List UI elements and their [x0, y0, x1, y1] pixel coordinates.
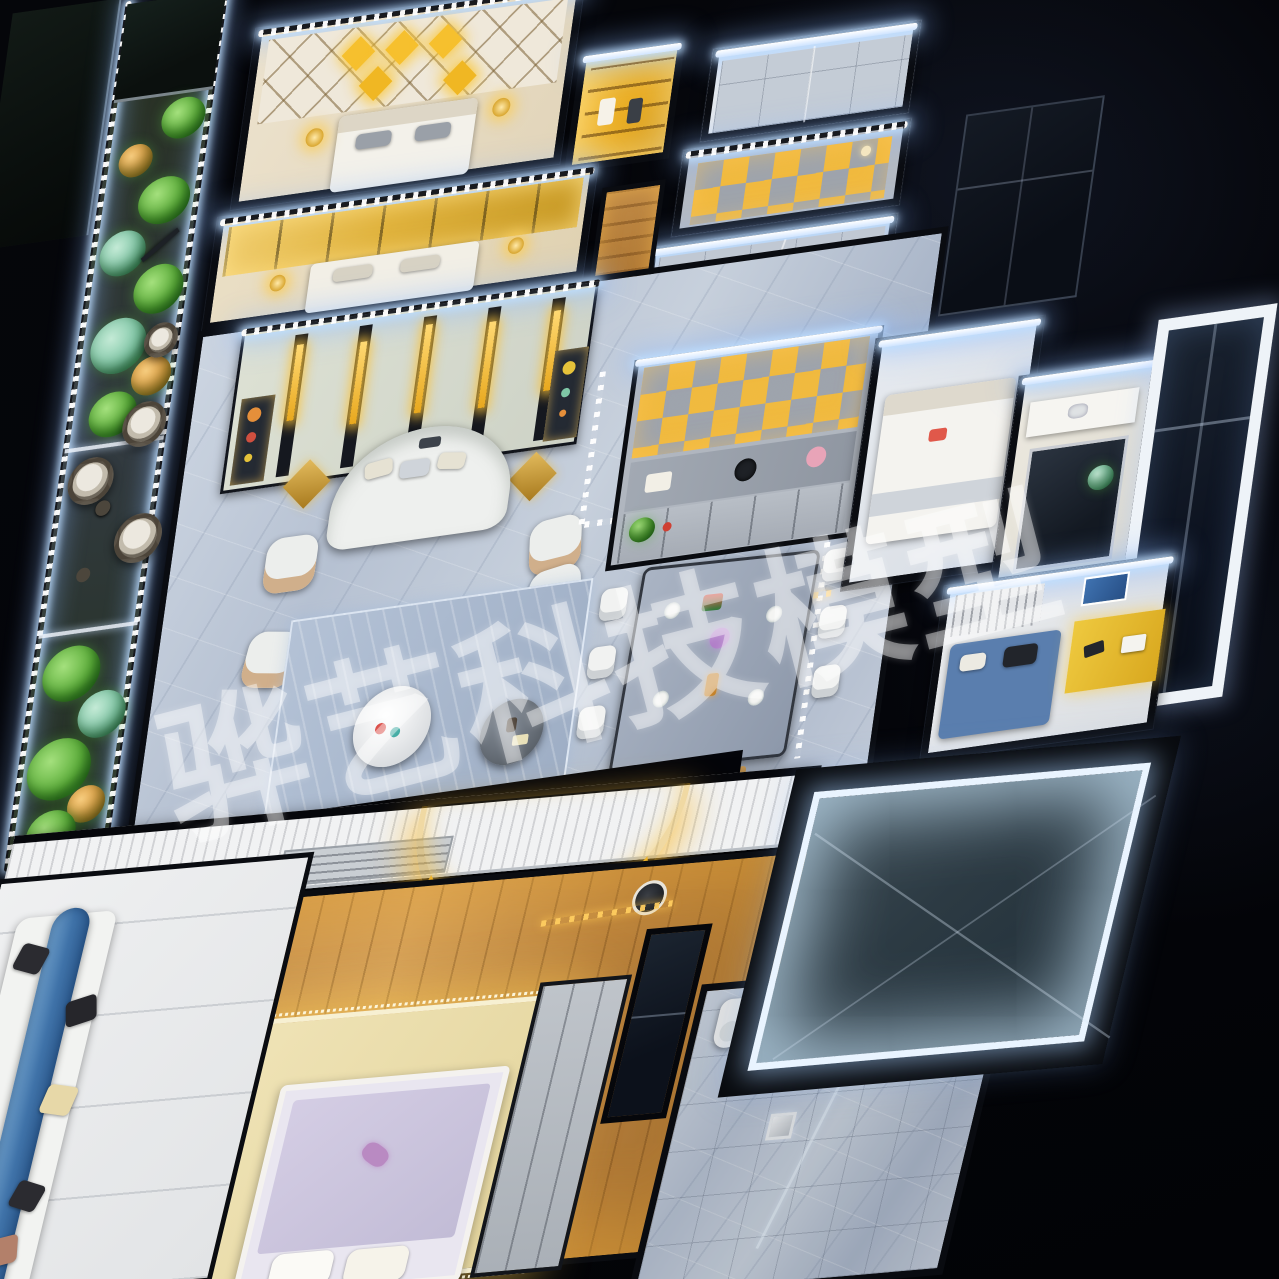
table-book [512, 734, 529, 747]
garden-glass-roof [114, 0, 227, 103]
laptop [1121, 634, 1147, 654]
black-pan [733, 457, 758, 483]
amber-bottle [704, 673, 720, 697]
garden-side-table [75, 567, 91, 583]
window-mullion [1004, 107, 1034, 305]
rattan-daybed [65, 454, 117, 508]
kitchen [605, 325, 884, 571]
lit-gold-diamond [443, 60, 477, 95]
bed-pillow [414, 121, 452, 141]
centerpiece-flowers [708, 627, 731, 650]
lit-gold-diamond [342, 36, 376, 71]
telescope [141, 228, 180, 263]
garden-plant [116, 142, 154, 180]
garden-curb [38, 621, 138, 639]
table-decor-red [374, 722, 386, 735]
bed-blue-blanket [938, 629, 1062, 739]
glass-panel-top-right [938, 95, 1105, 316]
bed-runner [869, 476, 1003, 517]
led-strip-icon [1021, 359, 1157, 385]
headboard [883, 377, 1017, 416]
dark-pillow [1002, 643, 1039, 668]
window-mullion [958, 170, 1093, 191]
bed [865, 377, 1017, 545]
wall-pilaster-lit [469, 306, 502, 450]
closet-shelves [578, 57, 674, 161]
desk-item-dark [1084, 640, 1105, 659]
bedside-lamp [304, 127, 324, 148]
rattan-daybed [111, 510, 165, 566]
garden-plant [97, 228, 149, 280]
decor-flowers [562, 360, 577, 375]
wall-pilaster-lit [340, 324, 373, 468]
gold-light-bar-icon [286, 344, 304, 421]
pendant-lamp [269, 274, 287, 293]
window-mullion [1163, 324, 1218, 693]
floor-seam-line [772, 795, 1156, 1060]
lit-gold-diamond [385, 30, 419, 65]
garden-plant [135, 173, 193, 228]
bed-pillow [341, 1245, 411, 1279]
dinner-plate [747, 688, 766, 706]
dinner-plate [663, 601, 682, 619]
floor-seam-line [814, 833, 1110, 1039]
food-box-red [701, 593, 724, 612]
duvet [257, 1083, 491, 1254]
dinner-plate [651, 690, 670, 708]
decor-flowers [246, 406, 262, 422]
mirror-dark-glass [1013, 435, 1129, 573]
table-decor-teal [389, 726, 400, 738]
sofa-tray [418, 436, 441, 449]
sofa-pillow [436, 452, 467, 469]
bed-pillow [266, 1249, 336, 1279]
gold-dot-lights [541, 900, 673, 927]
blue-artwork [1081, 571, 1131, 606]
study-room [920, 554, 1177, 762]
cutting-board [644, 471, 672, 493]
white-pillow [959, 652, 987, 672]
dinner-plate [765, 605, 784, 623]
gold-light-bar-icon [414, 324, 433, 414]
lit-gold-diamond [429, 24, 463, 59]
garden-side-table [94, 499, 111, 517]
bed [329, 97, 478, 193]
bed-pillow [399, 254, 440, 273]
sofa-pillow [365, 457, 393, 481]
decor-tray [928, 427, 948, 442]
pendant-lamp [507, 236, 525, 255]
model-photo-scene: 骅艺科技模型 [0, 0, 1279, 1279]
lit-gold-diamond [359, 66, 393, 101]
table-vase [506, 717, 518, 733]
pink-pot [805, 445, 828, 468]
walk-in-closet [564, 40, 686, 173]
gold-light-bar-icon [477, 321, 496, 409]
bed-pillow [332, 264, 373, 283]
wall-pilaster-lit [276, 333, 309, 477]
bedside-lamp [491, 97, 511, 118]
sofa-pillow [399, 458, 431, 480]
garden-plant [159, 94, 208, 141]
gold-light-bar-icon [349, 341, 368, 424]
window-mullion [631, 1012, 685, 1019]
bed-pillow [355, 130, 393, 150]
glow-room-floor [747, 763, 1151, 1071]
side-shelf-decor [230, 394, 276, 485]
desk-warm-lit [1064, 609, 1165, 694]
